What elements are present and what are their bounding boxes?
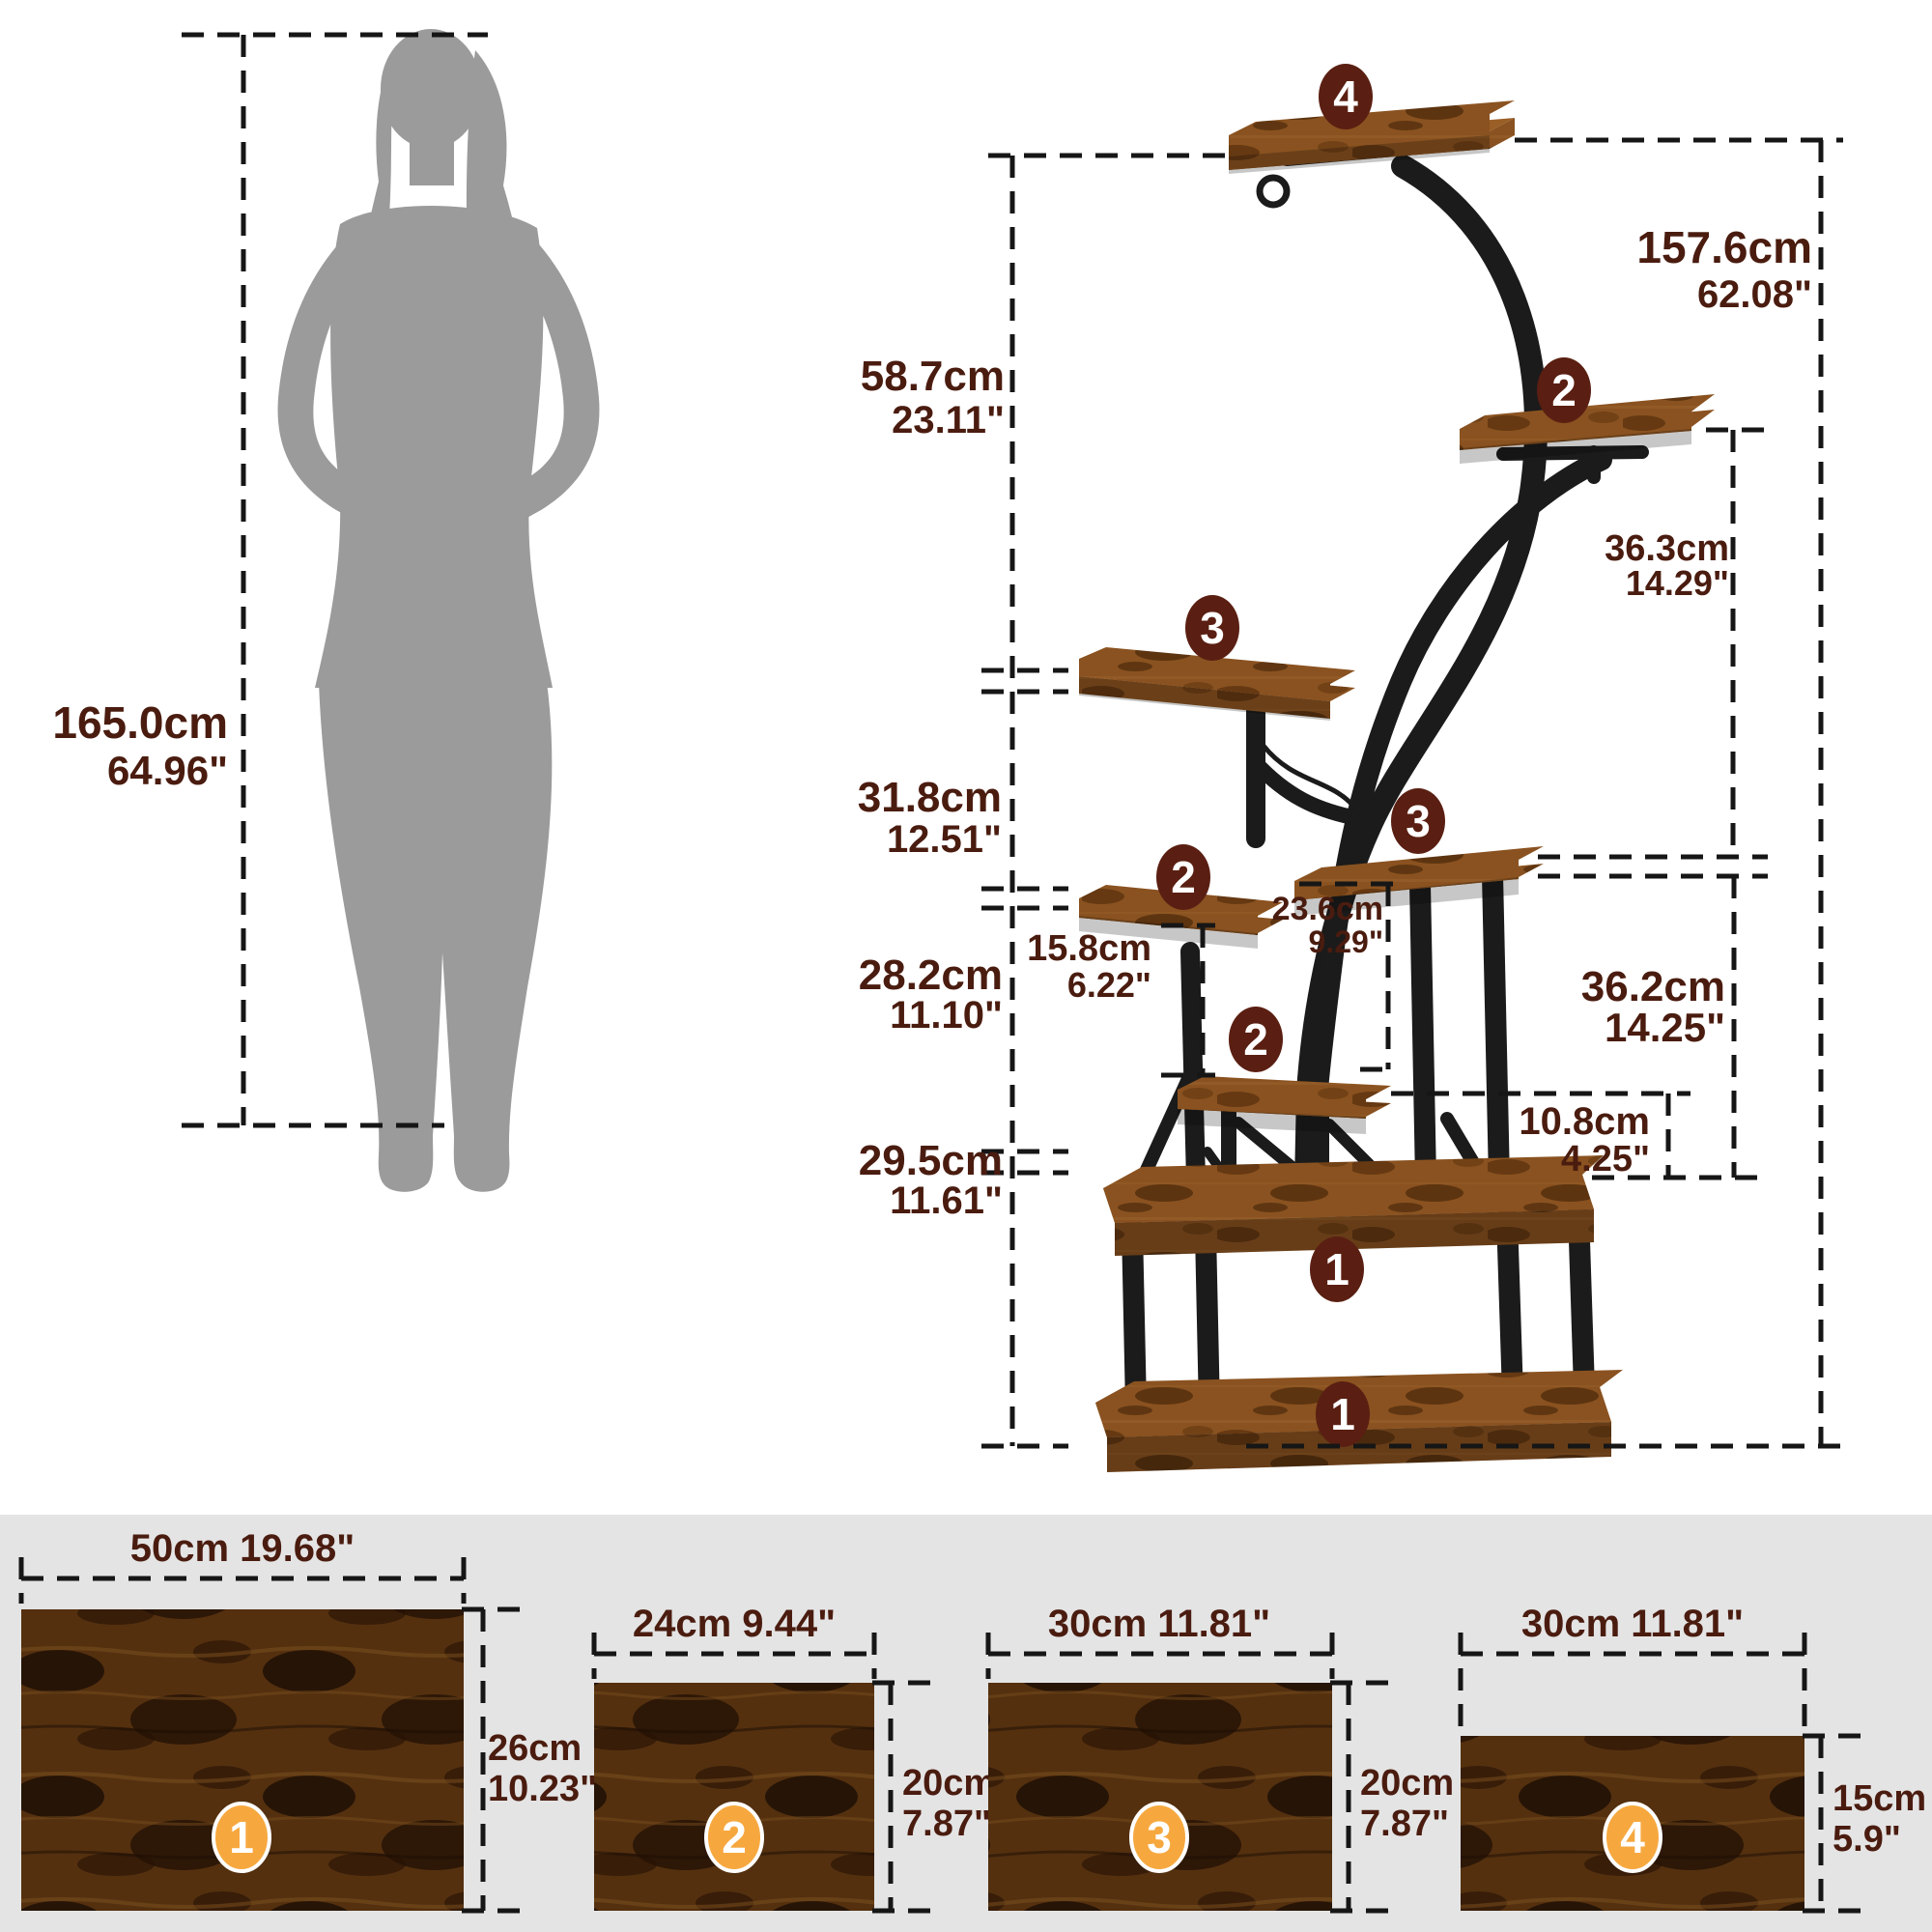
svg-text:3: 3: [1200, 603, 1225, 653]
panel4-height-cm: 15cm: [1833, 1778, 1926, 1819]
svg-text:9.29": 9.29": [1309, 924, 1383, 959]
dimension-infographic: 165.0cm 64.96": [0, 0, 1932, 1932]
svg-text:28.2cm: 28.2cm: [859, 952, 1003, 999]
stand-dimension-labels: 157.6cm 62.08" 58.7cm 23.11" 36.3cm 14.2…: [858, 222, 1812, 1222]
diagram-svg: 165.0cm 64.96": [0, 0, 1932, 1932]
panel3-width: 30cm 11.81": [1048, 1603, 1270, 1645]
svg-text:1: 1: [1324, 1244, 1350, 1294]
svg-text:2: 2: [1551, 365, 1577, 415]
panel3-height-cm: 20cm: [1360, 1763, 1454, 1804]
svg-text:58.7cm: 58.7cm: [861, 353, 1005, 400]
badge-base-lower: 1: [1316, 1381, 1370, 1447]
svg-text:23.6cm: 23.6cm: [1272, 891, 1383, 927]
shelf-2-middle: [1178, 1076, 1391, 1134]
svg-text:31.8cm: 31.8cm: [858, 774, 1002, 821]
svg-text:15.8cm: 15.8cm: [1027, 928, 1151, 969]
svg-text:2: 2: [1243, 1014, 1268, 1065]
woman-silhouette: [278, 29, 600, 1192]
badge-base-upper: 1: [1310, 1236, 1364, 1302]
svg-text:6.22": 6.22": [1067, 965, 1151, 1005]
panel1-width: 50cm 19.68": [130, 1527, 355, 1570]
panel4-height-inch: 5.9": [1833, 1819, 1901, 1860]
panel4-badge: 4: [1620, 1812, 1645, 1862]
panel1-height-inch: 10.23": [488, 1769, 597, 1809]
panel2-height-cm: 20cm: [902, 1763, 996, 1804]
badge-shelf4: 4: [1319, 64, 1373, 129]
shelf-4: [1229, 100, 1515, 174]
svg-text:11.61": 11.61": [890, 1179, 1003, 1222]
svg-text:3: 3: [1406, 796, 1431, 846]
svg-text:12.51": 12.51": [887, 818, 1002, 861]
svg-text:11.10": 11.10": [890, 994, 1003, 1037]
panel1-height-cm: 26cm: [488, 1728, 582, 1769]
svg-text:1: 1: [1330, 1389, 1355, 1439]
svg-text:4.25": 4.25": [1561, 1139, 1650, 1179]
svg-text:23.11": 23.11": [892, 399, 1005, 441]
panel2-badge: 2: [722, 1812, 747, 1862]
panel3-badge: 3: [1147, 1812, 1172, 1862]
badge-shelf2-middle: 2: [1229, 1007, 1283, 1072]
shelf3r-leg-right: [1492, 874, 1499, 1180]
person-height-cm: 165.0cm: [52, 697, 228, 748]
svg-text:29.5cm: 29.5cm: [859, 1137, 1003, 1184]
panel1-badge: 1: [229, 1812, 254, 1862]
svg-text:14.29": 14.29": [1626, 563, 1729, 603]
shelf3r-leg-left: [1420, 884, 1426, 1180]
badge-shelf2-right: 2: [1537, 357, 1591, 423]
badge-shelf3-right: 3: [1391, 788, 1445, 854]
panel4-width: 30cm 11.81": [1521, 1603, 1744, 1645]
badge-shelf2-left: 2: [1156, 844, 1210, 910]
panel2-height-inch: 7.87": [902, 1804, 991, 1844]
svg-text:2: 2: [1171, 852, 1196, 902]
panel3-height-inch: 7.87": [1360, 1804, 1449, 1844]
svg-text:14.25": 14.25": [1605, 1005, 1725, 1050]
overall-height-cm: 157.6cm: [1636, 222, 1812, 272]
overall-height-inch: 62.08": [1697, 273, 1812, 316]
base-leg-1: [1132, 1229, 1136, 1406]
badge-shelf3-left: 3: [1185, 595, 1239, 661]
svg-text:36.2cm: 36.2cm: [1581, 963, 1725, 1010]
svg-text:4: 4: [1333, 71, 1358, 122]
person-height-inch: 64.96": [107, 748, 228, 793]
svg-text:10.8cm: 10.8cm: [1519, 1100, 1650, 1143]
panel2-width: 24cm 9.44": [633, 1603, 836, 1645]
base-platform: [1103, 1155, 1604, 1256]
hook-ring-icon: [1260, 178, 1287, 205]
